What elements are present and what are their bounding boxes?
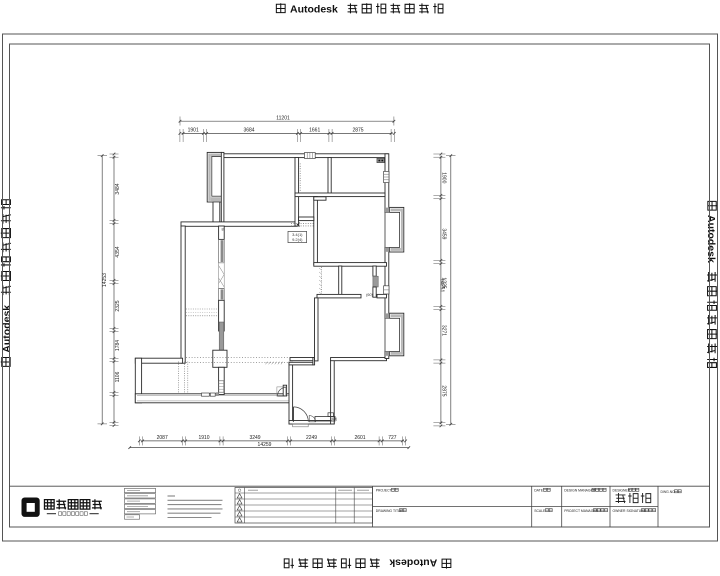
svg-text:1661: 1661 bbox=[309, 128, 320, 134]
svg-text:(60): (60) bbox=[331, 417, 337, 421]
svg-text:4354: 4354 bbox=[115, 246, 121, 257]
svg-text:2601: 2601 bbox=[354, 435, 365, 441]
svg-text:DATE: DATE bbox=[534, 489, 544, 493]
svg-text:1900: 1900 bbox=[440, 172, 446, 183]
svg-text:14253: 14253 bbox=[102, 273, 108, 287]
svg-text:1910: 1910 bbox=[198, 435, 209, 441]
svg-text:11201: 11201 bbox=[276, 115, 290, 121]
svg-text:2875: 2875 bbox=[352, 128, 363, 134]
svg-text:SCALE: SCALE bbox=[534, 509, 546, 513]
svg-text:3684: 3684 bbox=[243, 128, 254, 134]
svg-text:DESIGN MANAGER: DESIGN MANAGER bbox=[564, 489, 596, 493]
svg-text:1106: 1106 bbox=[115, 371, 121, 382]
svg-text:Autodesk: Autodesk bbox=[290, 3, 338, 15]
svg-text:1901: 1901 bbox=[188, 128, 199, 134]
svg-text:2087: 2087 bbox=[157, 435, 168, 441]
svg-text:2325: 2325 bbox=[115, 300, 121, 311]
svg-text:PROJECT: PROJECT bbox=[376, 489, 392, 493]
svg-text:Autodesk: Autodesk bbox=[705, 215, 717, 263]
svg-text:2875: 2875 bbox=[440, 385, 446, 396]
svg-text:DESIGNER: DESIGNER bbox=[613, 489, 631, 493]
svg-text:3271: 3271 bbox=[440, 325, 446, 336]
svg-text:727: 727 bbox=[388, 435, 397, 441]
svg-text:14259: 14259 bbox=[258, 442, 272, 448]
svg-text:Autodesk: Autodesk bbox=[389, 557, 437, 569]
svg-text:3459: 3459 bbox=[440, 228, 446, 239]
svg-text:3484: 3484 bbox=[115, 183, 121, 194]
svg-text:8: 8 bbox=[221, 228, 223, 232]
svg-text:(60): (60) bbox=[366, 293, 373, 297]
svg-text:2249: 2249 bbox=[306, 435, 317, 441]
svg-text:DRAWING TITLE: DRAWING TITLE bbox=[376, 509, 403, 513]
svg-text:3249: 3249 bbox=[249, 435, 260, 441]
svg-text:1225: 1225 bbox=[440, 277, 446, 288]
svg-text:9.2(4): 9.2(4) bbox=[292, 237, 303, 242]
svg-text:1784: 1784 bbox=[115, 340, 121, 351]
svg-text:DWG.NO: DWG.NO bbox=[661, 490, 676, 494]
